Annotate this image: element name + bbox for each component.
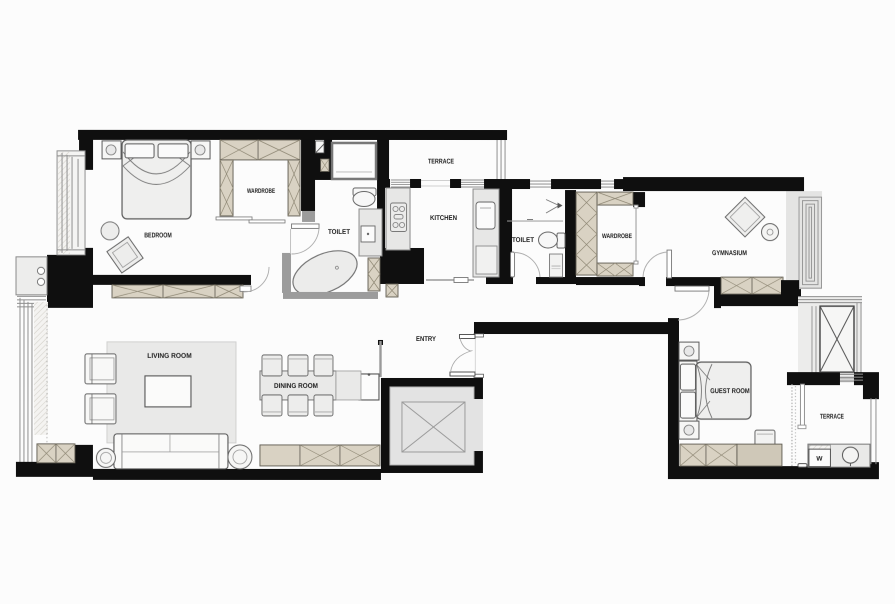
svg-text:GYMNASIUM: GYMNASIUM [712, 250, 747, 257]
svg-text:TOILET: TOILET [512, 237, 535, 244]
svg-text:LIVING ROOM: LIVING ROOM [147, 353, 192, 360]
svg-text:WARDROBE: WARDROBE [602, 233, 632, 240]
svg-text:DINING ROOM: DINING ROOM [274, 383, 318, 390]
svg-text:KITCHEN: KITCHEN [430, 215, 457, 222]
svg-text:WARDROBE: WARDROBE [247, 188, 275, 195]
svg-text:BEDROOM: BEDROOM [144, 232, 172, 239]
svg-text:W: W [816, 456, 823, 463]
svg-text:TERRACE: TERRACE [820, 414, 844, 421]
svg-text:TERRACE: TERRACE [428, 158, 454, 165]
svg-text:TOILET: TOILET [328, 229, 351, 236]
svg-text:GUEST ROOM: GUEST ROOM [710, 388, 750, 395]
svg-text:ENTRY: ENTRY [416, 336, 436, 343]
